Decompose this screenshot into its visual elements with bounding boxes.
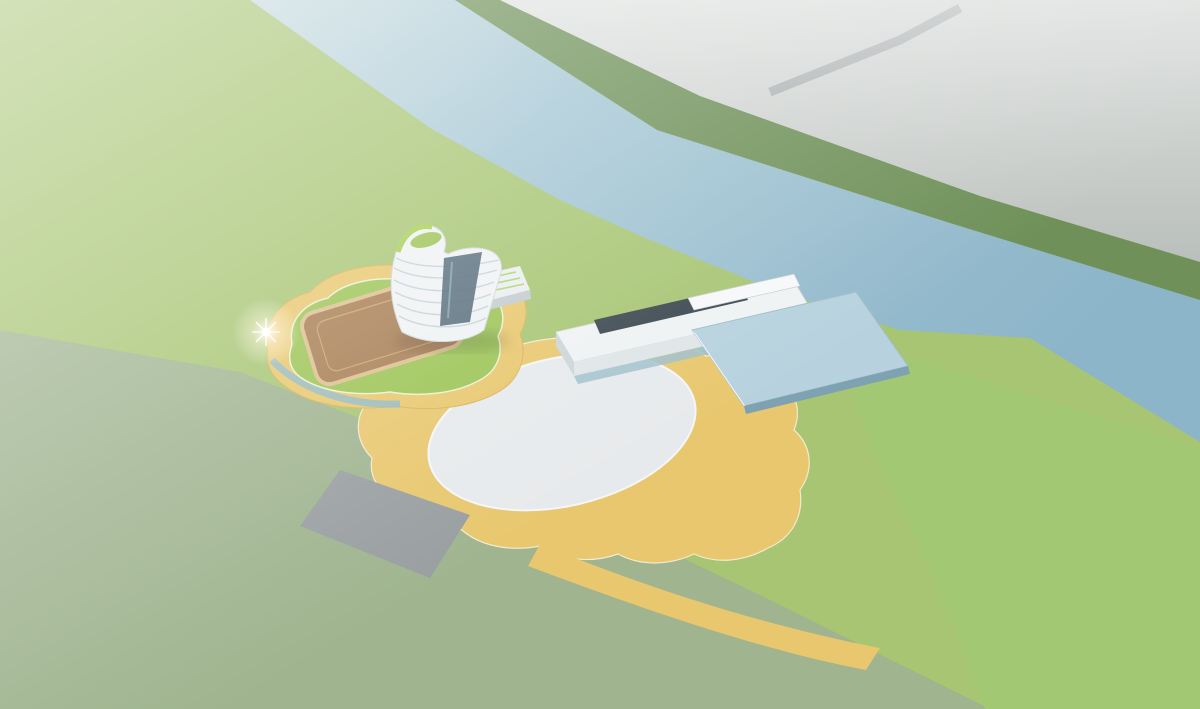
- sun-glint-core: [262, 328, 271, 337]
- sun-glint: [232, 298, 300, 366]
- rendering-canvas: Aerial architectural rendering of a rive…: [0, 0, 1200, 709]
- corner-haze-overlay: [0, 0, 1200, 709]
- aerial-rendering: Aerial architectural rendering of a rive…: [0, 0, 1200, 709]
